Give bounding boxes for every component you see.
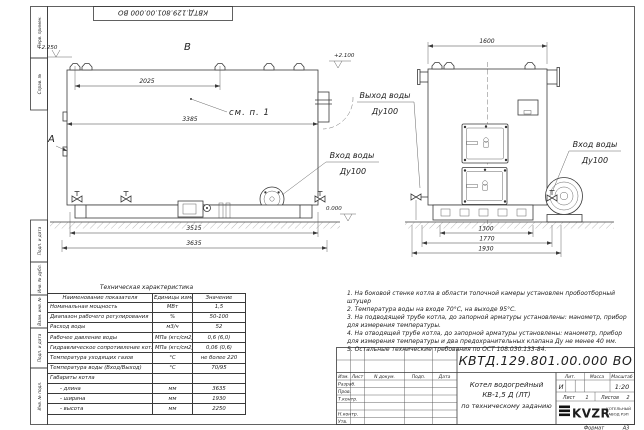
company-line2: ЗАВОД РЭП bbox=[606, 412, 629, 417]
margin-label-inv-podl: Инв. № подл. bbox=[37, 382, 42, 411]
role-nkontr: Н.контр. bbox=[338, 412, 358, 418]
dim-2025: 2025 bbox=[139, 78, 154, 85]
spec-cell: 1,5 bbox=[193, 302, 246, 312]
note-line: 5. Остальные технические требования по О… bbox=[347, 346, 635, 354]
spec-cell: - длина bbox=[48, 384, 153, 394]
spec-header-value: Значение bbox=[193, 293, 246, 302]
dim-3635: 3635 bbox=[186, 240, 201, 247]
dim-1770: 1770 bbox=[479, 236, 494, 243]
spec-cell: 2250 bbox=[193, 404, 246, 414]
dim-1930: 1930 bbox=[478, 246, 493, 253]
role-razrab: Разраб. bbox=[338, 382, 356, 388]
spec-row: Рабочее давление водыМПа (кгс/см2)0,6 (6… bbox=[48, 333, 246, 343]
note-line: 1. На боковой стенке котла в области топ… bbox=[347, 290, 635, 305]
spec-cell: 70/95 bbox=[193, 363, 246, 373]
lit-value: И bbox=[559, 383, 564, 391]
margin-label-inv-dubl: Инв. № дубл. bbox=[37, 264, 42, 293]
mass-header: Масса bbox=[590, 374, 605, 380]
spec-cell: °С bbox=[153, 353, 193, 363]
see-note-ref: см. п. 1 bbox=[229, 108, 270, 118]
spec-cell: м3/ч bbox=[153, 322, 193, 332]
spec-cell: 1930 bbox=[193, 394, 246, 404]
outlet-label: Выход воды bbox=[360, 91, 411, 100]
spec-cell: Габариты котла bbox=[48, 373, 153, 383]
fan-icon bbox=[546, 178, 583, 223]
spec-header-unit: Единицы измерения bbox=[153, 293, 193, 302]
level-mark-2250: +2.250 bbox=[37, 45, 58, 51]
sheet-label: Лист bbox=[562, 395, 575, 401]
side-inlet-size: Ду100 bbox=[339, 167, 366, 176]
scale-header: Масштаб bbox=[611, 374, 633, 380]
role-utv: Утв. bbox=[338, 419, 347, 425]
spec-cell: мм bbox=[153, 394, 193, 404]
product-name-line1: Котел водогрейный bbox=[470, 381, 544, 389]
side-view: 2025 3385 3515 3635 +2.250 В +2.100 А 0.… bbox=[37, 42, 379, 252]
spec-table-title: Техническая характеристика bbox=[47, 284, 246, 291]
spec-cell: мм bbox=[153, 384, 193, 394]
side-inlet-label: Вход воды bbox=[330, 151, 375, 160]
spec-cell bbox=[193, 373, 246, 383]
note-line: 4. На отводящей трубе котла, до запорной… bbox=[347, 330, 635, 345]
doc-number: КВТД.129.801.00.000 ВО bbox=[459, 353, 633, 368]
scale-value: 1:20 bbox=[615, 383, 630, 391]
spec-cell: Гидравлическое сопротивление котла bbox=[48, 343, 153, 353]
spec-cell bbox=[153, 373, 193, 383]
spec-header-name: Наименование показателя bbox=[48, 293, 153, 302]
spec-cell: Номинальная мощность bbox=[48, 302, 153, 312]
spec-cell: 3635 bbox=[193, 384, 246, 394]
role-prov: Пров. bbox=[338, 389, 351, 395]
spec-row: Габариты котла bbox=[48, 373, 246, 383]
spec-cell: 0,6 (6,0) bbox=[193, 333, 246, 343]
outlet-size: Ду100 bbox=[371, 107, 398, 116]
front-view: 1600 1300 1770 1930 Выход воды Ду100 Вхо… bbox=[357, 38, 621, 257]
spec-cell: 0,06 (0,6) bbox=[193, 343, 246, 353]
rev-header-izm: Изм. bbox=[338, 374, 349, 380]
spec-cell: - ширина bbox=[48, 394, 153, 404]
spec-cell: Температура воды (Вход/Выход) bbox=[48, 363, 153, 373]
spec-table: Техническая характеристика Наименование … bbox=[47, 284, 246, 415]
front-inlet-size: Ду100 bbox=[581, 156, 608, 165]
view-label-b: В bbox=[184, 42, 191, 53]
rev-header-docnum: N докум. bbox=[374, 374, 395, 380]
front-inlet-label: Вход воды bbox=[573, 140, 618, 149]
dim-3515: 3515 bbox=[186, 225, 201, 232]
company-line1: КОТЕЛЬНЫЙ bbox=[606, 406, 631, 411]
spec-row: Диапазон рабочего регулирования%50-100 bbox=[48, 312, 246, 322]
drawing-sheet: КВТД.129.801.00.000 ВО Перв. примен. Спр… bbox=[0, 0, 644, 430]
spec-cell: Рабочее давление воды bbox=[48, 333, 153, 343]
note-line: 3. На подводящей трубе котла, до запорно… bbox=[347, 314, 635, 329]
spec-cell: МПа (кгс/см2) bbox=[153, 343, 193, 353]
spec-cell: мм bbox=[153, 404, 193, 414]
margin-label-perv-primen: Перв. примен. bbox=[37, 16, 42, 47]
spec-header-row: Наименование показателя Единицы измерени… bbox=[48, 293, 246, 302]
top-stamp-text: КВТД.129.801.00.000 ВО bbox=[118, 8, 208, 16]
spec-row: Расход водым3/ч52 bbox=[48, 322, 246, 332]
margin-label-podp-data-2: Подп. и дата bbox=[37, 333, 42, 362]
spec-cell: - высота bbox=[48, 404, 153, 414]
title-block: Изм. Лист N докум. Подп. Дата Разраб. Пр… bbox=[337, 348, 635, 430]
rev-header-list: Лист bbox=[351, 374, 364, 380]
format-value: А3 bbox=[622, 426, 630, 430]
dim-1600: 1600 bbox=[479, 38, 494, 45]
spec-cell: °С bbox=[153, 363, 193, 373]
rev-header-podp: Подп. bbox=[412, 374, 426, 380]
spec-row: - высотамм2250 bbox=[48, 404, 246, 414]
top-stamp: КВТД.129.801.00.000 ВО bbox=[94, 7, 233, 21]
spec-row: Номинальная мощностьМВт1,5 bbox=[48, 302, 246, 312]
margin-column: Перв. примен. Справ. № Подп. и дата Инв.… bbox=[31, 7, 48, 425]
note-line: 2. Температура воды на входе 70°С, на вы… bbox=[347, 306, 635, 314]
rev-header-data: Дата bbox=[438, 374, 451, 380]
spec-cell: Диапазон рабочего регулирования bbox=[48, 312, 153, 322]
spec-cell: 52 bbox=[193, 322, 246, 332]
spec-cell: МПа (кгс/см2) bbox=[153, 333, 193, 343]
product-name-line3: по техническому заданию bbox=[461, 402, 552, 410]
spec-cell: Расход воды bbox=[48, 322, 153, 332]
sheet-number: 1 bbox=[585, 395, 588, 401]
lit-header: Лит. bbox=[564, 374, 575, 380]
level-mark-2100: +2.100 bbox=[334, 53, 355, 59]
spec-row: Гидравлическое сопротивление котлаМПа (к… bbox=[48, 343, 246, 353]
technical-notes: 1. На боковой стенке котла в области топ… bbox=[347, 290, 635, 354]
dim-3385: 3385 bbox=[182, 116, 197, 123]
margin-label-podp-data-1: Подп. и дата bbox=[37, 226, 42, 255]
sheets-total: 2 bbox=[626, 395, 629, 401]
level-mark-zero: 0.000 bbox=[326, 206, 342, 212]
spec-cell: % bbox=[153, 312, 193, 322]
margin-label-sprav-no: Справ. № bbox=[37, 73, 42, 94]
spec-row: - ширинамм1930 bbox=[48, 394, 246, 404]
role-tkontr: Т.контр. bbox=[338, 397, 358, 403]
logo-text: KVZR bbox=[572, 407, 610, 421]
spec-cell: 50-100 bbox=[193, 312, 246, 322]
margin-label-vzam-inv: Взам. инв. № bbox=[37, 297, 42, 326]
format-label: Формат bbox=[584, 426, 605, 430]
dim-1300: 1300 bbox=[478, 226, 493, 233]
spec-row: Температура уходящих газов°Сне более 220 bbox=[48, 353, 246, 363]
spec-cell: МВт bbox=[153, 302, 193, 312]
sheets-label: Листов bbox=[600, 395, 619, 401]
kvzr-logo: KVZR КОТЕЛЬНЫЙ ЗАВОД РЭП bbox=[559, 406, 631, 421]
spec-row: Температура воды (Вход/Выход)°С70/95 bbox=[48, 363, 246, 373]
spec-row: - длинамм3635 bbox=[48, 384, 246, 394]
product-name-line2: КВ-1,5 Д (ЛТ) bbox=[482, 391, 531, 399]
spec-cell: Температура уходящих газов bbox=[48, 353, 153, 363]
view-label-a: А bbox=[47, 134, 55, 145]
spec-cell: не более 220 bbox=[193, 353, 246, 363]
